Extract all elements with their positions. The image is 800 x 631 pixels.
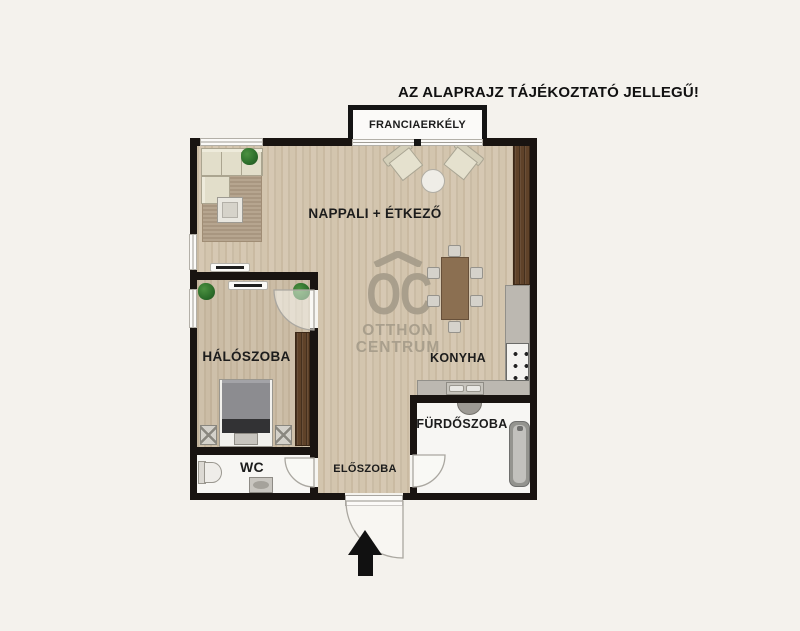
- french-balcony: FRANCIAERKÉLY: [348, 105, 487, 139]
- round-table-icon: [421, 169, 445, 193]
- floorplan-canvas: AZ ALAPRAJZ TÁJÉKOZTATÓ JELLEGŰ! OC OTTH…: [0, 0, 800, 631]
- watermark-logo-text: OC: [366, 267, 431, 322]
- tv-icon: [228, 281, 268, 290]
- kitchen-sink-icon: [446, 382, 484, 395]
- stove-icon: [506, 343, 529, 381]
- wall-segment: [410, 487, 417, 493]
- wall-segment: [190, 270, 197, 289]
- wc-label: WC: [197, 459, 307, 475]
- dining-chair-icon: [470, 295, 483, 307]
- plant-icon: [241, 148, 258, 165]
- balcony-label: FRANCIAERKÉLY: [369, 119, 466, 131]
- dining-chair-icon: [427, 295, 440, 307]
- living-room-label: NAPPALI + ÉTKEZŐ: [295, 206, 455, 221]
- wall-segment: [410, 395, 537, 403]
- window: [189, 234, 197, 270]
- tall-cabinet-icon: [513, 145, 530, 285]
- tv-icon: [210, 263, 250, 272]
- wall-segment: [310, 272, 318, 290]
- bathroom-door-gap: [410, 455, 417, 487]
- wall-segment: [190, 493, 345, 500]
- wall-segment: [403, 493, 537, 500]
- bedroom-door-gap: [310, 290, 318, 328]
- nightstand-icon: [275, 425, 292, 445]
- dining-chair-icon: [448, 245, 461, 257]
- disclaimer-text: AZ ALAPRAJZ TÁJÉKOZTATÓ JELLEGŰ!: [398, 84, 699, 101]
- wall-segment: [310, 487, 318, 493]
- wall-segment: [310, 328, 318, 458]
- plant-icon: [293, 283, 310, 300]
- dining-chair-icon: [427, 267, 440, 279]
- window: [189, 289, 197, 328]
- dining-chair-icon: [470, 267, 483, 279]
- bathroom-label: FÜRDŐSZOBA: [412, 417, 512, 431]
- bed-icon: [219, 379, 273, 447]
- wall-segment: [262, 138, 352, 146]
- bedroom-label: HÁLÓSZOBA: [190, 349, 303, 364]
- wall-segment: [483, 138, 537, 146]
- dining-table-icon: [441, 257, 469, 320]
- kitchen-label: KONYHA: [408, 351, 508, 365]
- window: [200, 138, 263, 146]
- window-mullion: [414, 139, 421, 146]
- wall-segment: [190, 138, 197, 234]
- wall-segment: [197, 447, 318, 455]
- entrance-door-leaf: [345, 495, 403, 506]
- plant-icon: [198, 283, 215, 300]
- wall-segment: [530, 138, 537, 500]
- wc-sink-icon: [249, 477, 273, 493]
- coffee-table-icon: [217, 197, 243, 223]
- entrance-arrow-icon: [348, 530, 382, 576]
- wall-segment: [197, 272, 318, 280]
- hall-label: ELŐSZOBA: [320, 463, 410, 475]
- dining-chair-icon: [448, 321, 461, 333]
- nightstand-icon: [200, 425, 217, 445]
- wc-door-gap: [310, 458, 318, 487]
- bathtub-icon: [509, 421, 530, 487]
